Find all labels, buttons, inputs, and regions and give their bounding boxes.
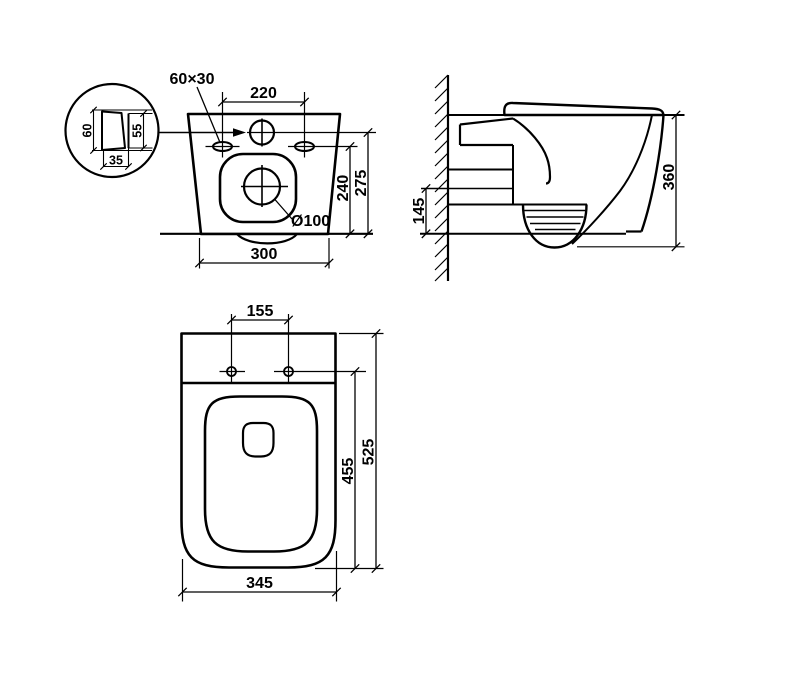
detail-dim-35-label: 35 (109, 154, 123, 168)
technical-drawing-sheet: 60 55 35 60×30 220 240 275 300 Ø100 (0, 0, 800, 681)
dim-240-label: 240 (335, 175, 352, 202)
detail-dim-55-label: 55 (131, 124, 145, 138)
side-view: 145 360 (411, 75, 685, 281)
wall-hatching (435, 75, 448, 281)
seat-lid-profile (504, 103, 663, 115)
seat-hole-vertical-centerlines (232, 314, 289, 383)
dim-360-label: 360 (661, 164, 678, 191)
slot-profile-section (102, 112, 125, 151)
slot-size-label: 60×30 (170, 71, 215, 88)
rear-view: 60 55 35 60×30 220 240 275 300 Ø100 (66, 71, 377, 269)
drain-label-leader (275, 199, 293, 219)
rear-inner-rim (220, 154, 296, 222)
detail-arrowhead-icon (233, 128, 246, 136)
drain-hole-crosshair (241, 165, 288, 207)
drain-diameter-label: Ø100 (291, 213, 330, 230)
top-dimension-ticks (178, 316, 380, 596)
dim-455-label: 455 (340, 458, 357, 485)
detail-dim-60-label: 60 (81, 124, 95, 138)
side-dimension-lines (426, 115, 676, 247)
dim-525-label: 525 (361, 439, 378, 466)
toilet-dimension-drawing: 60 55 35 60×30 220 240 275 300 Ø100 (0, 0, 800, 681)
detail-circle: 60 55 35 (66, 84, 159, 177)
dim-345-label: 345 (246, 575, 273, 592)
bowl-back-curve (513, 119, 550, 184)
dim-300-label: 300 (251, 246, 278, 263)
dim-275-label: 275 (353, 170, 370, 197)
trap-water-lines (525, 211, 586, 230)
outlet-pipe-lines (449, 170, 587, 205)
top-inner-rim (205, 397, 317, 552)
dim-220-label: 220 (250, 85, 277, 102)
dim-155-label: 155 (247, 303, 274, 320)
top-drain-opening (243, 423, 274, 457)
mounting-recess (460, 119, 513, 146)
rear-bowl-bottom-arc (237, 234, 297, 243)
top-view: 155 455 525 345 (178, 303, 383, 602)
dim-145-label: 145 (411, 198, 428, 225)
